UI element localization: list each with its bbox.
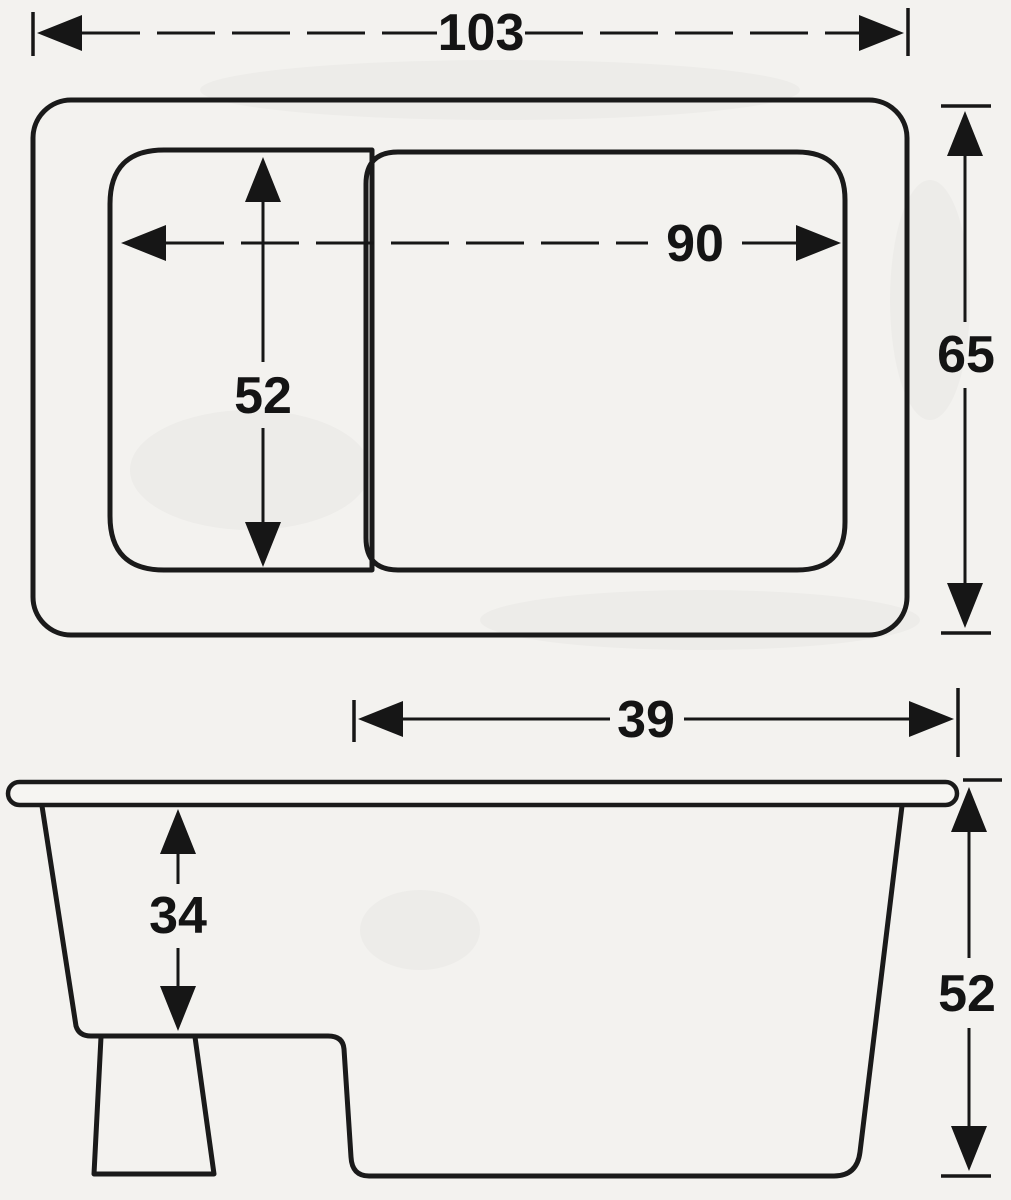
dim-well-length-value: 39 (617, 691, 675, 749)
dim-overall-width-value: 65 (937, 326, 995, 384)
arrow-left-icon (358, 701, 403, 737)
dim-overall-length-value: 103 (438, 4, 525, 62)
dim-seat-depth-value: 34 (149, 887, 207, 945)
side-view: 39 34 52 (8, 688, 1002, 1176)
arrow-up-icon (160, 809, 196, 854)
arrow-down-icon (245, 522, 281, 567)
arrow-right-icon (796, 225, 841, 261)
side-foot-outline (94, 1037, 214, 1174)
arrow-left-icon (37, 15, 82, 51)
dim-seat-depth: 34 (149, 809, 207, 1031)
arrow-left-icon (121, 225, 166, 261)
side-rim-flange (8, 782, 957, 805)
scanned-drawing-sheet: 103 65 90 52 (0, 0, 1011, 1200)
dim-overall-height: 52 (938, 780, 1002, 1176)
dim-overall-length: 103 (33, 4, 908, 62)
dim-basin-length-value: 90 (666, 215, 724, 273)
dim-overall-width: 65 (937, 106, 995, 633)
bathtub-dimension-drawing: 103 65 90 52 (0, 0, 1011, 1200)
dim-well-length: 39 (354, 688, 958, 757)
dim-basin-length: 90 (121, 215, 841, 273)
arrow-down-icon (951, 1126, 987, 1171)
arrow-down-icon (160, 986, 196, 1031)
arrow-up-icon (245, 157, 281, 202)
arrow-right-icon (909, 701, 954, 737)
dim-basin-width-value: 52 (234, 367, 292, 425)
arrow-right-icon (859, 15, 904, 51)
arrow-up-icon (947, 111, 983, 156)
dim-overall-height-value: 52 (938, 965, 996, 1023)
plan-outer-rim-outline (33, 100, 907, 635)
plan-main-basin-outline (366, 152, 845, 570)
plan-view: 103 65 90 52 (33, 4, 995, 635)
arrow-down-icon (947, 583, 983, 628)
